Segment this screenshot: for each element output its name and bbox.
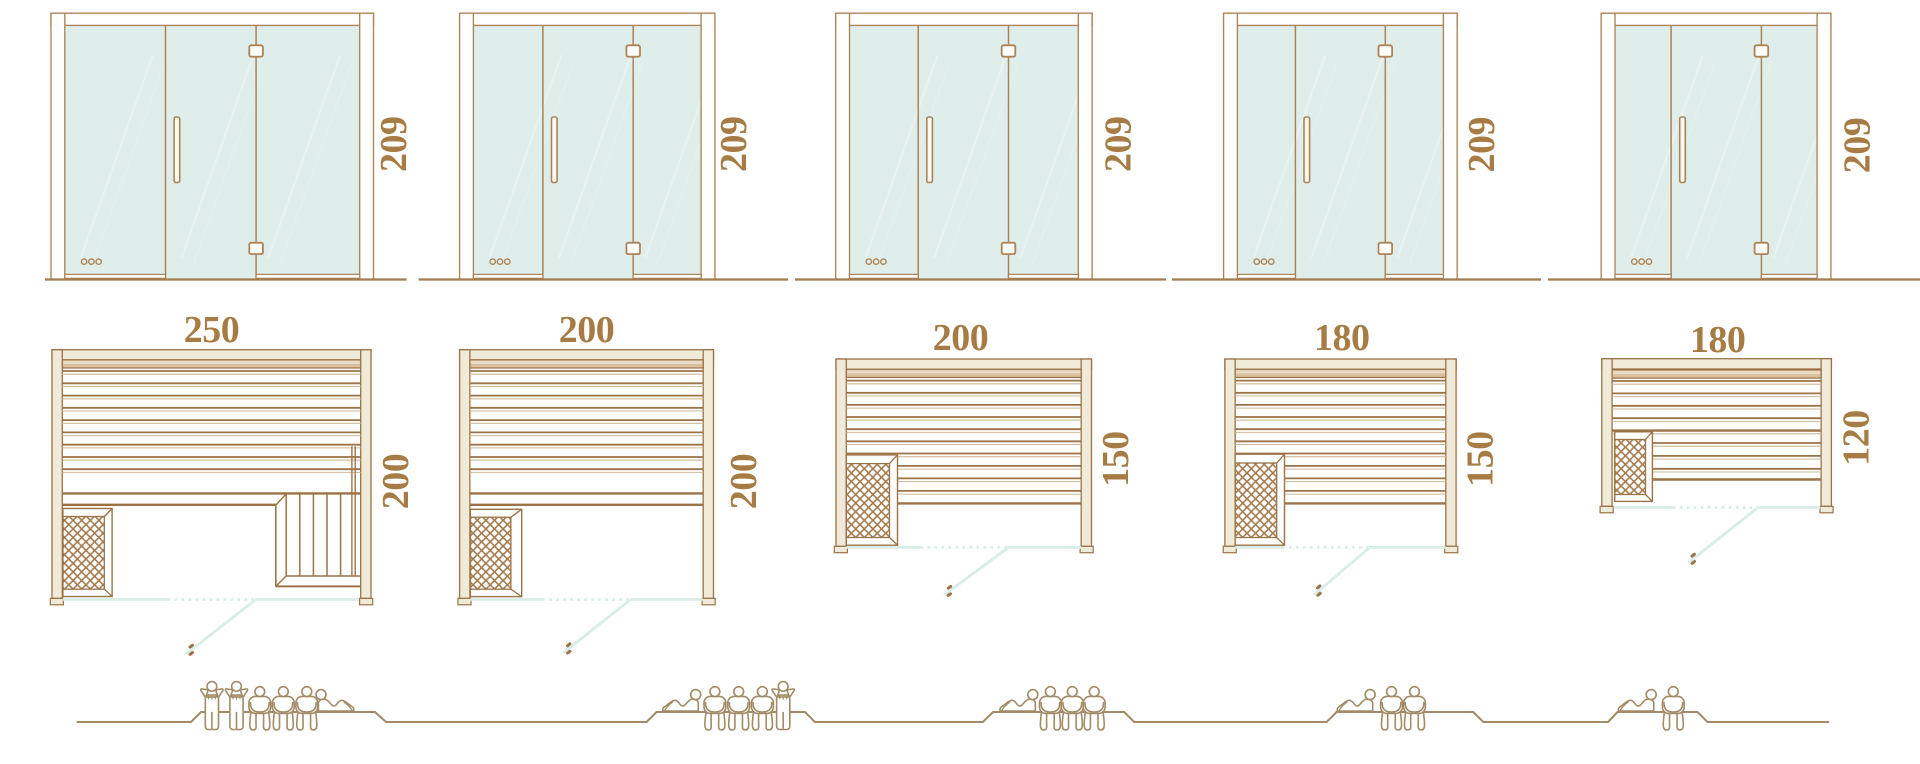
svg-text:150: 150 xyxy=(1459,431,1501,487)
svg-text:209: 209 xyxy=(373,117,415,173)
svg-text:150: 150 xyxy=(1095,431,1137,487)
svg-text:200: 200 xyxy=(723,454,765,510)
svg-text:209: 209 xyxy=(1461,117,1503,173)
svg-text:200: 200 xyxy=(559,309,615,351)
svg-text:209: 209 xyxy=(1837,118,1879,174)
svg-text:120: 120 xyxy=(1836,410,1878,466)
svg-text:209: 209 xyxy=(713,117,755,173)
svg-text:250: 250 xyxy=(184,309,240,351)
svg-text:180: 180 xyxy=(1690,319,1746,361)
svg-text:180: 180 xyxy=(1314,317,1370,359)
svg-text:200: 200 xyxy=(933,317,989,359)
svg-text:200: 200 xyxy=(375,454,417,510)
svg-text:209: 209 xyxy=(1098,117,1140,173)
